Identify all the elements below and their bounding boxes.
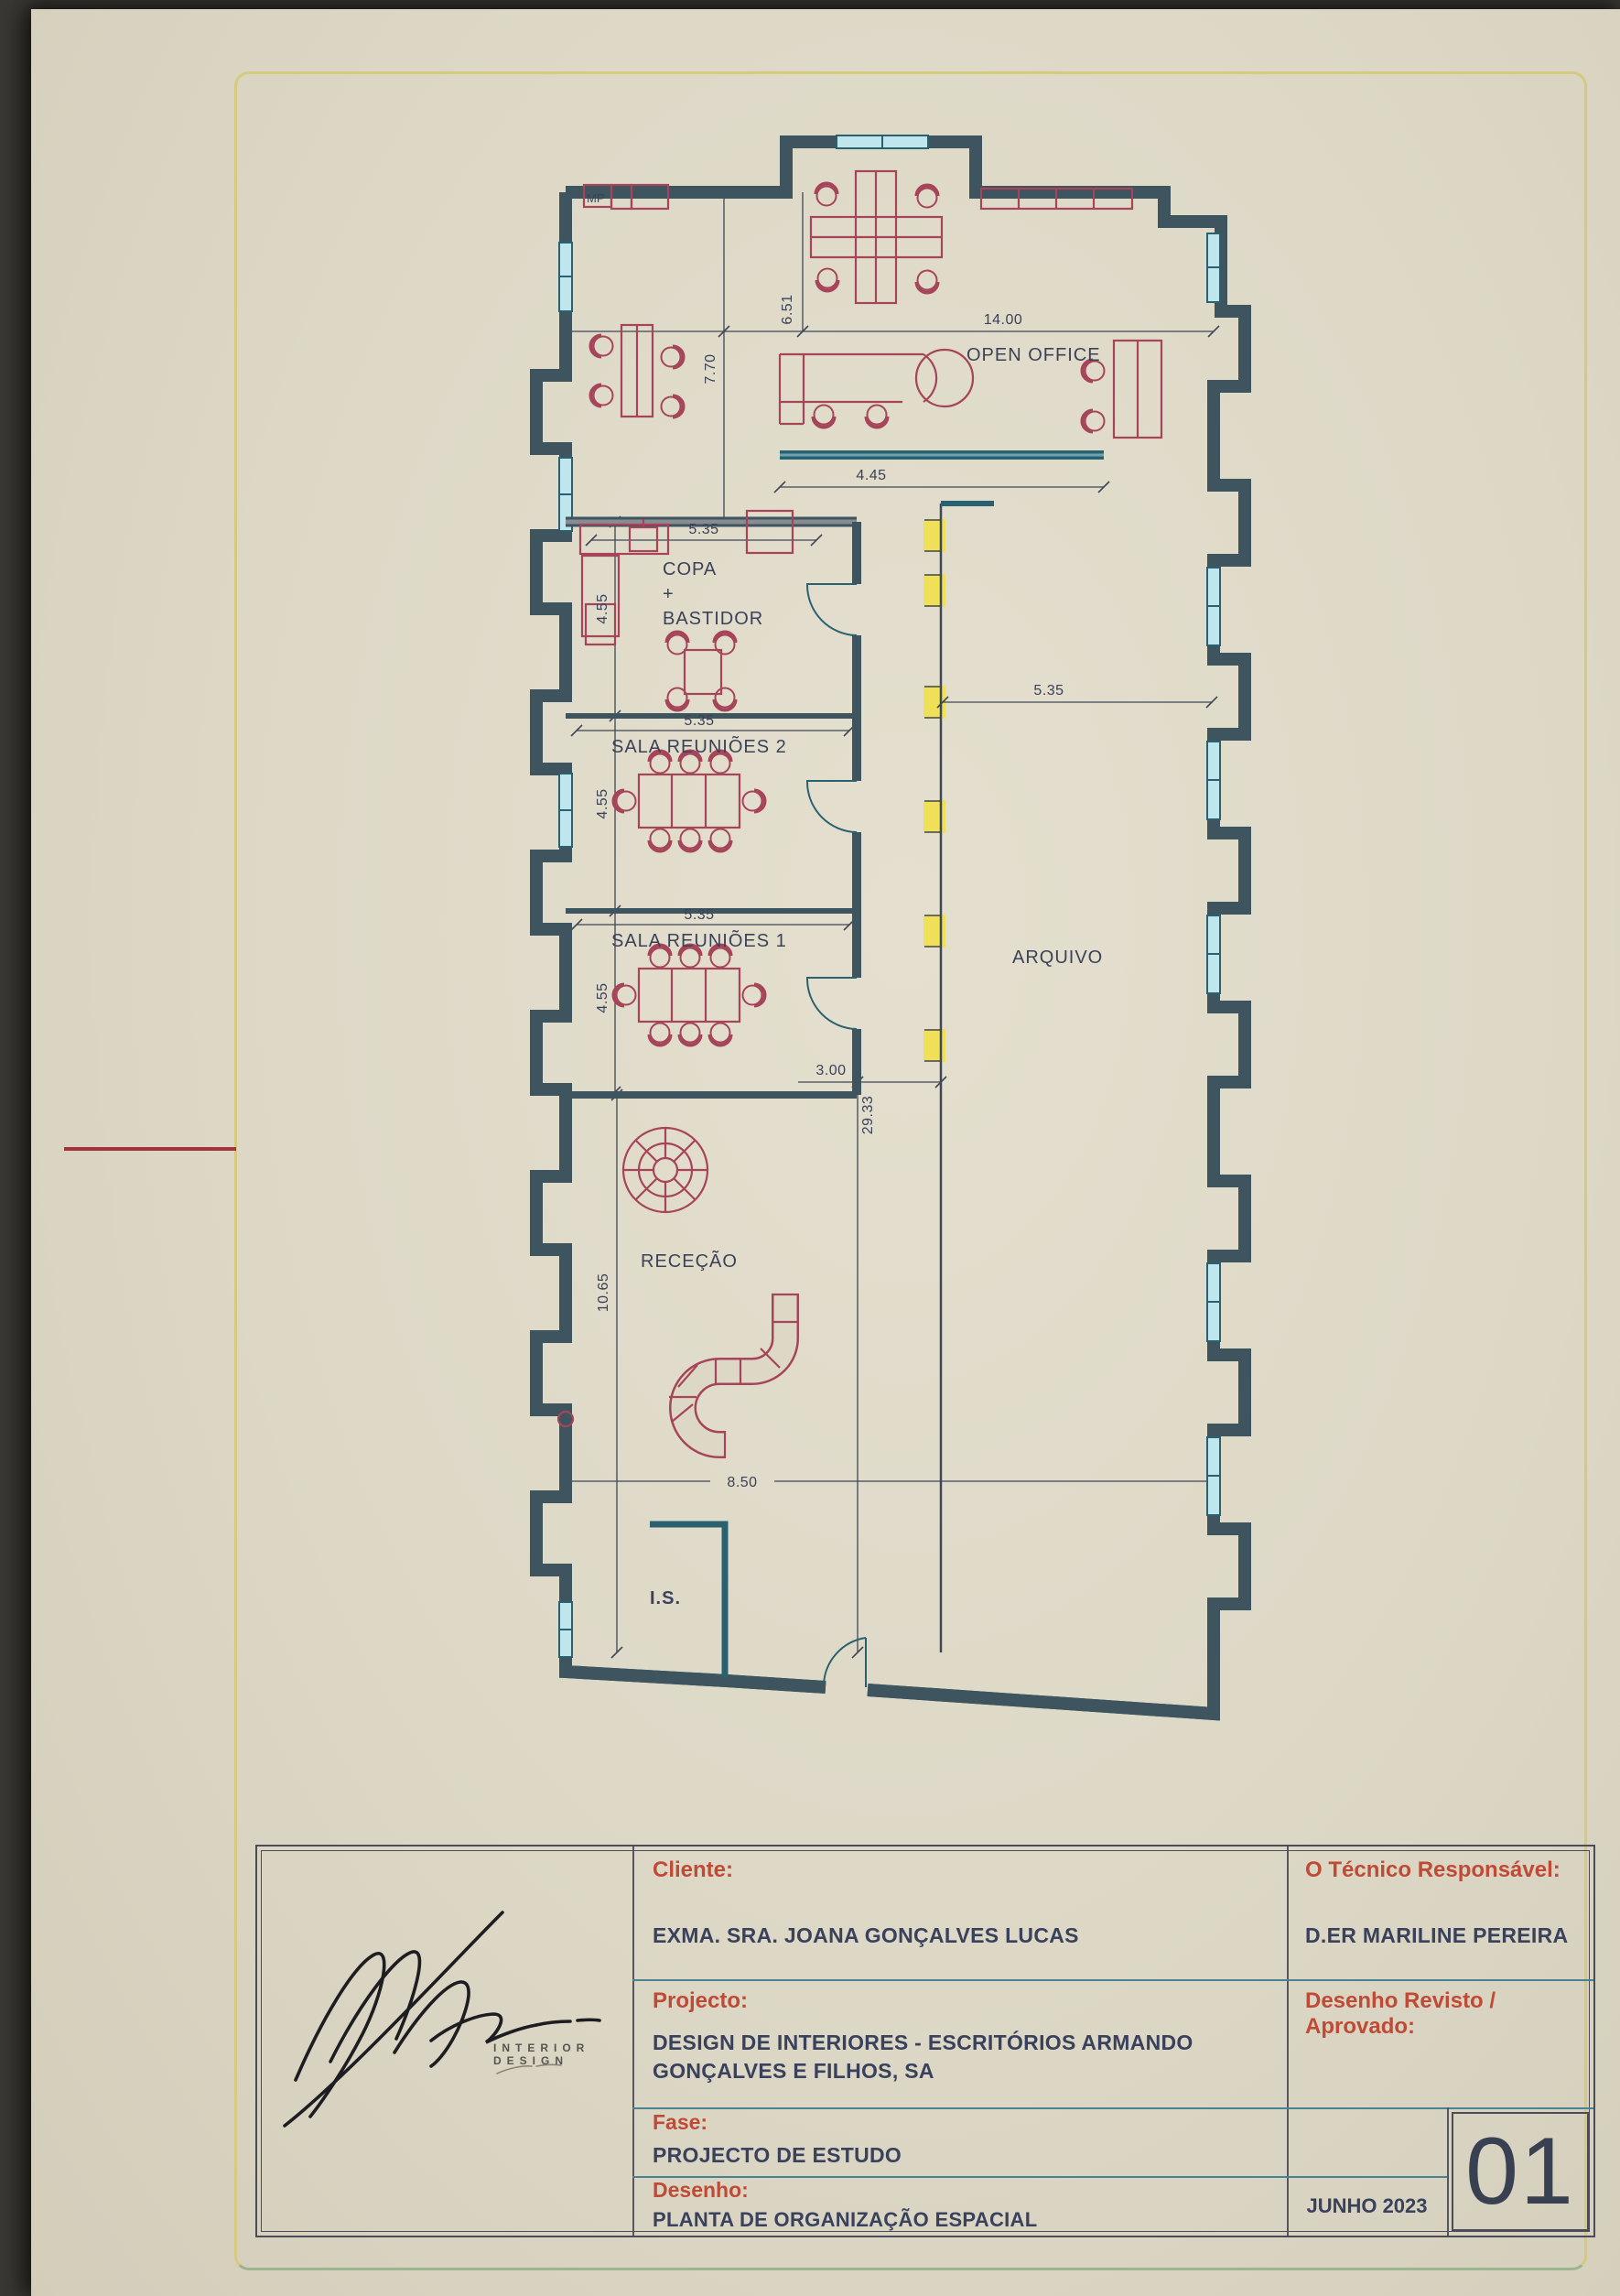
sheet-number-cell: 01	[1447, 2107, 1593, 2236]
dim-zone-a: 6.51	[780, 294, 795, 324]
sheet-number-border	[1452, 2112, 1589, 2231]
meeting-table-2	[614, 752, 765, 851]
title-block: INTERIOR DESIGN Cliente: EXMA. SRA. JOAN…	[255, 1845, 1595, 2237]
dimension-texts: 14.00 6.51 7.70 4.45 5.35 4.55 5.35 4.55…	[595, 294, 1064, 1490]
meeting-table-1	[614, 946, 765, 1045]
dim-sala2-d: 4.55	[595, 788, 610, 818]
label-mp: MP	[587, 191, 605, 205]
entrance-door-arc	[824, 1638, 866, 1687]
logo-subtitle: INTERIOR DESIGN	[493, 2041, 632, 2067]
dim-corridor: 3.00	[815, 1063, 846, 1078]
cliente-label: Cliente:	[653, 1857, 733, 1883]
reception-desk	[669, 1294, 799, 1458]
label-arquivo: ARQUIVO	[1012, 948, 1103, 968]
tecnico-cell: O Técnico Responsável: D.ER MARILINE PER…	[1287, 1847, 1593, 1979]
cliente-value: EXMA. SRA. JOANA GONÇALVES LUCAS	[653, 1922, 1079, 1950]
label-copa-2: +	[663, 584, 675, 604]
desenho-value: PLANTA DE ORGANIZAÇÃO ESPACIAL	[653, 2206, 1037, 2234]
dim-rececao-d: 10.65	[596, 1273, 611, 1313]
dim-total-length: 29.33	[860, 1096, 876, 1135]
revisto-label: Desenho Revisto / Aprovado:	[1305, 1988, 1593, 2040]
date-cell: JUNHO 2023	[1287, 2176, 1447, 2236]
dim-bottom-w: 8.50	[727, 1475, 757, 1490]
dim-sala1-d: 4.55	[595, 982, 610, 1013]
label-sala-reunioes-2: SALA REUNIÕES 2	[611, 735, 787, 757]
date-value: JUNHO 2023	[1306, 2194, 1427, 2218]
projecto-value: DESIGN DE INTERIORES - ESCRITÓRIOS ARMAN…	[653, 2029, 1238, 2085]
tecnico-value: D.ER MARILINE PEREIRA	[1305, 1922, 1568, 1950]
label-copa-3: BASTIDOR	[663, 609, 763, 629]
label-open-office: OPEN OFFICE	[967, 345, 1101, 365]
fase-value: PROJECTO DE ESTUDO	[653, 2141, 902, 2170]
round-sofa	[623, 1128, 707, 1212]
paper-sheet: OPEN OFFICE COPA + BASTIDOR SALA REUNIÕE…	[31, 9, 1620, 2296]
cliente-cell: Cliente: EXMA. SRA. JOANA GONÇALVES LUCA…	[632, 1847, 1287, 1979]
label-sala-reunioes-1: SALA REUNIÕES 1	[611, 929, 787, 951]
dim-arquivo-w: 5.35	[1033, 683, 1064, 699]
dim-total-width: 14.00	[984, 312, 1023, 328]
tecnico-label: O Técnico Responsável:	[1305, 1857, 1561, 1883]
photo-of-drawing: OPEN OFFICE COPA + BASTIDOR SALA REUNIÕE…	[0, 0, 1620, 2296]
fase-cell: Fase: PROJECTO DE ESTUDO	[632, 2107, 1287, 2176]
revisto-cell: Desenho Revisto / Aprovado:	[1287, 1979, 1593, 2107]
dim-zone-b: 7.70	[703, 353, 718, 384]
fase-label: Fase:	[653, 2110, 707, 2135]
desenho-cell: Desenho: PLANTA DE ORGANIZAÇÃO ESPACIAL	[632, 2176, 1287, 2236]
label-copa-1: COPA	[663, 559, 717, 579]
room-labels: OPEN OFFICE COPA + BASTIDOR SALA REUNIÕE…	[587, 191, 1103, 1608]
logo-cell: INTERIOR DESIGN	[257, 1847, 632, 2236]
copa-door-arc	[807, 584, 857, 635]
cross-desk	[811, 171, 942, 303]
p-shaped-desk	[780, 350, 973, 428]
sala2-door-arc	[807, 781, 857, 832]
dim-sala2-w: 5.35	[684, 713, 714, 729]
label-is: I.S.	[650, 1588, 681, 1608]
label-rececao: RECEÇÃO	[641, 1250, 738, 1272]
windows	[559, 135, 1220, 1657]
projecto-label: Projecto:	[653, 1988, 748, 2014]
dim-copa-d: 4.55	[595, 593, 610, 623]
dim-sala1-w: 5.35	[684, 907, 714, 923]
desenho-label: Desenho:	[653, 2178, 749, 2203]
door-highlights	[923, 519, 945, 1062]
sala1-door-arc	[807, 978, 857, 1029]
left-desk-group	[591, 325, 684, 417]
dim-copa-w: 5.35	[688, 522, 718, 537]
projecto-cell: Projecto: DESIGN DE INTERIORES - ESCRITÓ…	[632, 1979, 1287, 2107]
dim-partition: 4.45	[856, 468, 886, 483]
